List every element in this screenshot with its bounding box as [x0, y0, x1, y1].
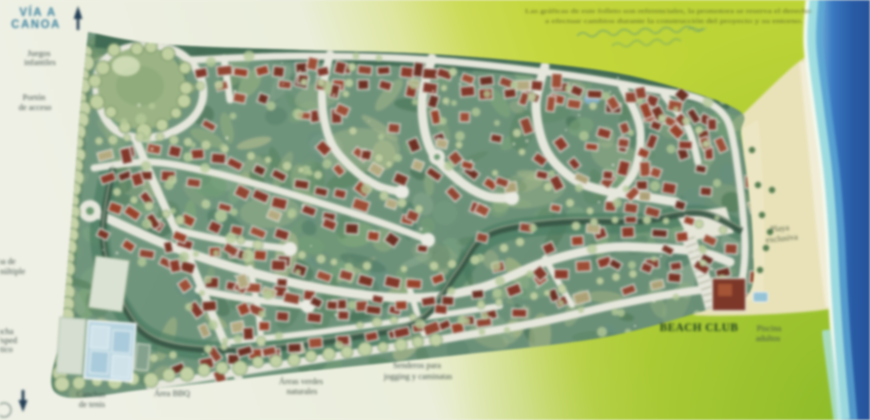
svg-text:Canchas: Canchas	[77, 389, 106, 399]
svg-text:Área BBQ: Área BBQ	[154, 388, 190, 398]
svg-text:naturales: naturales	[287, 386, 318, 396]
svg-text:sintético: sintético	[0, 344, 13, 354]
svg-text:uso múltiple: uso múltiple	[0, 266, 25, 276]
svg-text:VÍA A: VÍA A	[19, 6, 56, 19]
svg-text:Las gráficas de este folleto s: Las gráficas de este folleto son referen…	[525, 8, 812, 15]
svg-text:Portón: Portón	[23, 92, 46, 102]
svg-text:de tenis: de tenis	[79, 399, 105, 409]
svg-text:Piscina: Piscina	[757, 323, 782, 333]
svg-text:a efectuar cambios durante la: a efectuar cambios durante la construcci…	[545, 18, 803, 25]
svg-text:jogging y caminatas: jogging y caminatas	[383, 371, 452, 381]
svg-text:BEACH CLUB: BEACH CLUB	[660, 322, 739, 334]
svg-text:adultos: adultos	[756, 333, 781, 343]
svg-text:de acceso: de acceso	[19, 102, 52, 112]
svg-text:Cancha de: Cancha de	[0, 256, 16, 266]
svg-text:Senderos para: Senderos para	[393, 360, 441, 370]
svg-text:CANOA: CANOA	[11, 19, 61, 31]
svg-text:Áreas verdes: Áreas verdes	[279, 376, 323, 386]
svg-text:infantiles: infantiles	[24, 57, 56, 67]
